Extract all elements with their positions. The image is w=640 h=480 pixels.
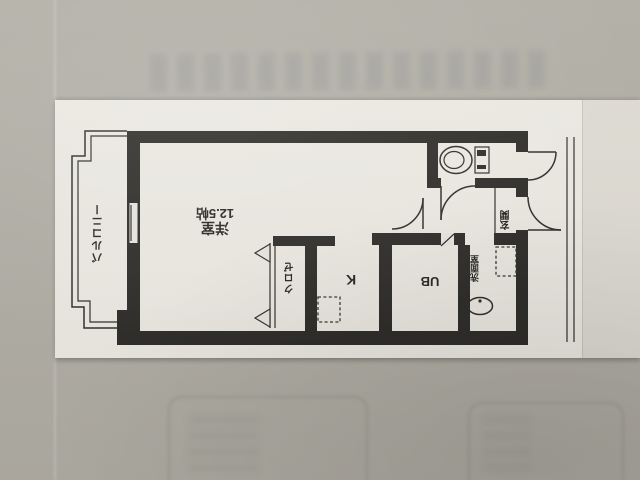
main-room-size: 12.5帖 [180,205,250,220]
toilet-tank-mark [477,165,486,169]
closet-door-wedge-bottom [255,309,270,327]
floorplan-photo: 洋室 12.5帖 バルコニー クロゼ K UB 洗面室 玄関 [0,0,640,480]
wall-right-a [516,131,528,152]
wall-closet-kitchen-divider [305,236,317,331]
wall-ub-washroom-divider [458,245,470,331]
washroom-label: 洗面室 [471,246,484,291]
unit-bath-label: UB [414,268,446,288]
toilet-bowl-inner [444,152,464,169]
main-room-label: 洋室 12.5帖 [180,205,250,236]
floorplan-drawing: 洋室 12.5帖 バルコニー クロゼ K UB 洗面室 玄関 [0,0,640,480]
corridor-lines [567,137,574,342]
wall-bottom [117,331,528,345]
wall-closet-top [273,236,335,246]
door-arc-entrance-upper [528,152,556,180]
wall-right-b [516,178,528,197]
toilet-tank-lid [477,150,486,156]
door-arc-entrance-lower [528,197,561,230]
closet-label: クロゼ [286,254,300,302]
washing-machine-area [496,247,516,276]
wall-toilet-bottom-a [427,178,441,188]
door-arc-toilet [441,186,475,220]
sink-faucet-dot [478,299,481,302]
kitchen-label: K [337,268,365,288]
entrance-label: 玄関 [502,198,516,242]
wall-toilet-bottom-b [475,178,516,188]
wall-kitchen-ub-divider [379,233,392,331]
balcony-label: バルコニー [93,195,108,271]
refrigerator-area [318,297,340,322]
walls [117,131,528,345]
main-room-name: 洋室 [180,220,250,236]
toilet-icon [440,147,472,174]
closet-door-wedge-top [255,244,270,262]
wall-ub-top [453,233,465,245]
door-arc-main-room [392,198,423,229]
wall-top [127,131,528,143]
wall-right-c [516,230,528,345]
